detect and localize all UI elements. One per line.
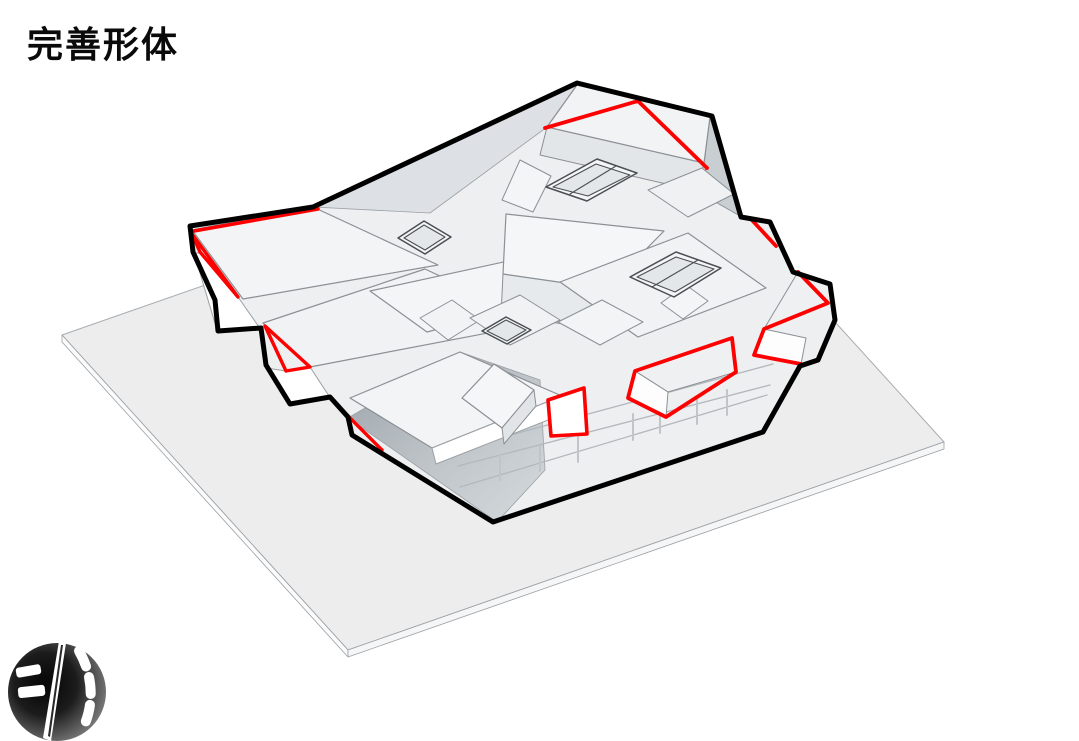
scene-svg [0, 0, 1079, 741]
massing-diagram [0, 0, 1079, 741]
slide: 完善形体 [0, 0, 1079, 741]
